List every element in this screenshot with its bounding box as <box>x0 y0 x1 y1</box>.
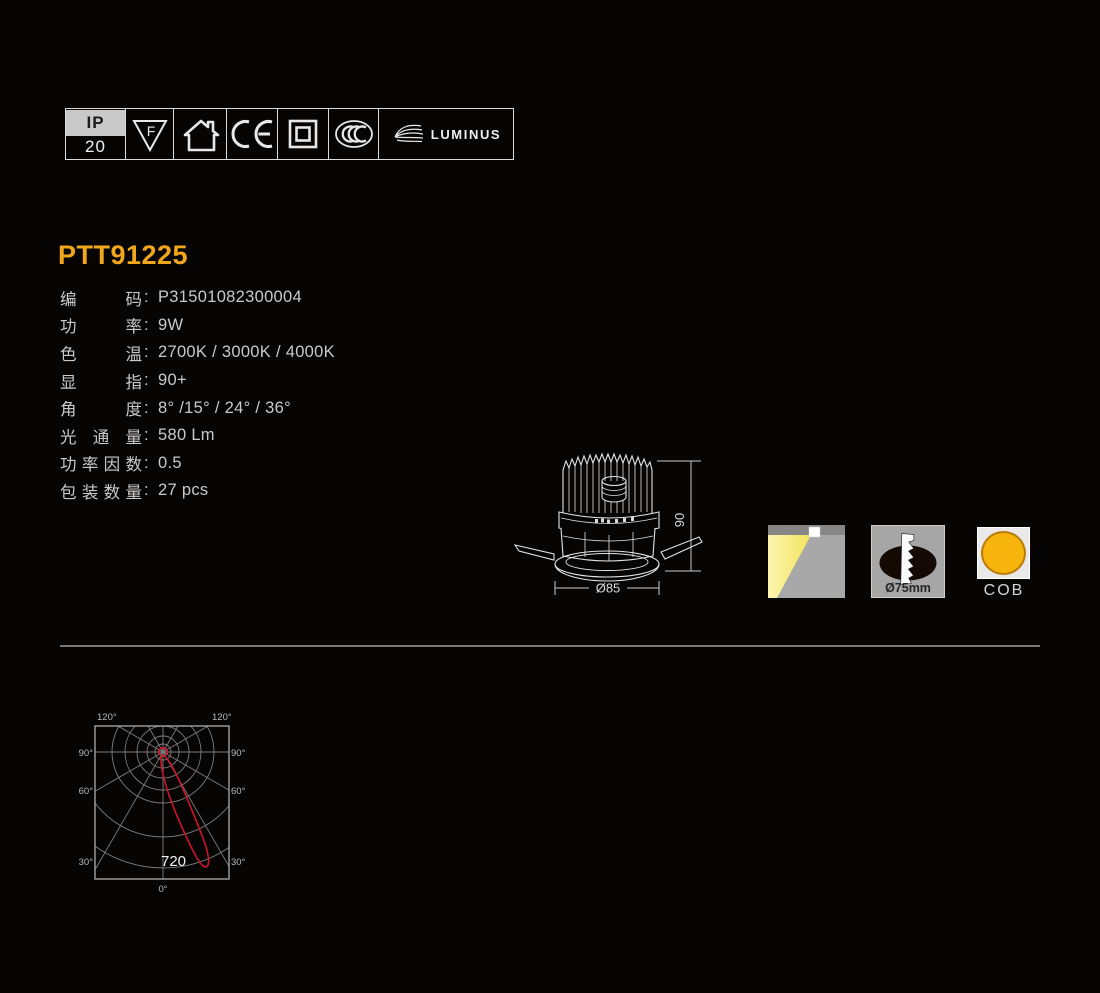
spec-value: P31501082300004 <box>158 288 302 307</box>
page-title: PTT91225 <box>58 240 188 271</box>
spec-label: 角度 <box>60 396 142 420</box>
spec-value: 9W <box>158 316 183 335</box>
luminus-swoosh-icon <box>391 119 425 149</box>
height-dimension-label: 90 <box>672 513 687 527</box>
angle-label-90-right: 90° <box>231 748 246 759</box>
spec-value: 8° /15° / 24° / 36° <box>158 399 291 418</box>
datasheet-page: IP 20 F <box>0 0 1100 993</box>
spec-value: 580 Lm <box>158 426 215 445</box>
spec-label: 色温 <box>60 341 142 365</box>
angle-label-90-left: 90° <box>79 748 94 759</box>
ccc-mark-icon <box>328 109 378 159</box>
spec-value: 27 pcs <box>158 481 208 500</box>
spec-row: 色温:2700K / 3000K / 4000K <box>60 339 490 367</box>
certification-bar: IP 20 F <box>65 108 514 160</box>
spec-row: 光通量:580 Lm <box>60 422 490 450</box>
cutout-diameter-label: Ø75mm <box>885 581 931 595</box>
angle-label-30-right: 30° <box>231 857 246 868</box>
luminus-logo: LUMINUS <box>378 109 513 159</box>
recessed-beam-icon <box>768 525 845 598</box>
spec-label: 功率 <box>60 313 142 337</box>
spec-colon: : <box>144 316 158 335</box>
spec-colon: : <box>144 481 158 500</box>
spec-colon: : <box>144 426 158 445</box>
spec-row: 包装数量:27 pcs <box>60 477 490 505</box>
ce-mark-icon <box>226 109 277 159</box>
spec-label: 功率因数 <box>60 451 142 475</box>
angle-label-60-left: 60° <box>79 786 94 797</box>
ip-rating-badge: IP 20 <box>66 109 125 159</box>
beam-curve <box>159 748 209 867</box>
recessed-house-icon <box>173 109 226 159</box>
spec-row: 编码:P31501082300004 <box>60 284 490 312</box>
angle-label-120-left: 120° <box>97 712 117 723</box>
ip-value: 20 <box>66 136 125 159</box>
cob-label: COB <box>972 582 1036 600</box>
f-mark-letter: F <box>146 123 155 139</box>
spec-colon: : <box>144 343 158 362</box>
angle-label-60-right: 60° <box>231 786 246 797</box>
spec-row: 功率:9W <box>60 312 490 340</box>
angle-label-0: 0° <box>158 884 167 895</box>
spec-value: 2700K / 3000K / 4000K <box>158 343 335 362</box>
polar-grid <box>60 700 260 905</box>
spec-colon: : <box>144 371 158 390</box>
spec-colon: : <box>144 288 158 307</box>
spec-list: 编码:P31501082300004 功率:9W 色温:2700K / 3000… <box>60 284 490 505</box>
downlight-drawing: 90 Ø85 <box>505 440 715 610</box>
ip-label: IP <box>66 110 125 136</box>
luminus-wordmark: LUMINUS <box>431 127 501 142</box>
spec-row: 角度:8° /15° / 24° / 36° <box>60 394 490 422</box>
spec-label: 编码 <box>60 286 142 310</box>
f-triangle-icon: F <box>125 109 173 159</box>
spec-row: 功率因数:0.5 <box>60 450 490 478</box>
spec-colon: : <box>144 454 158 473</box>
peak-intensity-label: 720 <box>161 853 186 870</box>
cob-chip-dot <box>981 531 1026 575</box>
spec-label: 显指 <box>60 369 142 393</box>
cutout-hole-icon: Ø75mm <box>871 525 945 598</box>
diameter-dimension-label: Ø85 <box>596 581 621 596</box>
spec-label: 包装数量 <box>60 479 142 503</box>
spec-value: 0.5 <box>158 454 182 473</box>
spec-value: 90+ <box>158 371 187 390</box>
spec-colon: : <box>144 399 158 418</box>
spec-row: 显指:90+ <box>60 367 490 395</box>
class-ii-square-icon <box>277 109 328 159</box>
section-divider <box>60 645 1040 647</box>
angle-label-120-right: 120° <box>212 712 232 723</box>
spec-label: 光通量 <box>60 424 142 448</box>
photometric-polar-chart: 120° 120° 90° 90° 60° 60° 30° 30° 0° 720 <box>60 700 260 905</box>
cob-icon <box>977 527 1030 579</box>
angle-label-30-left: 30° <box>79 857 94 868</box>
